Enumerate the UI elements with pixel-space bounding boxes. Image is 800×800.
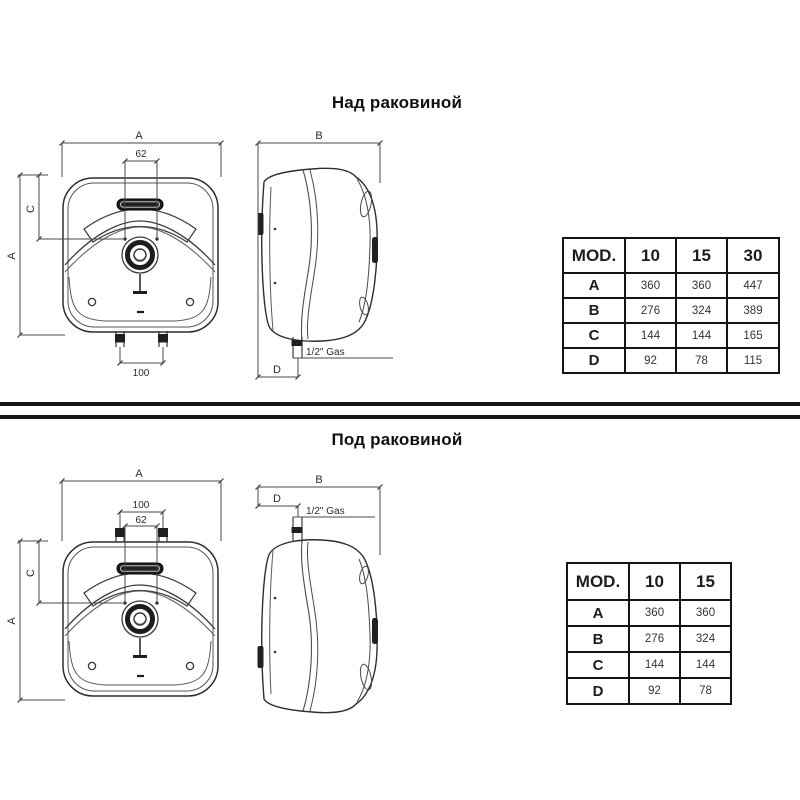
table-row: D 92 78 (567, 678, 731, 704)
dim-value: 324 (676, 298, 727, 323)
dim-value: 78 (680, 678, 731, 704)
dim-label-B: B (315, 474, 322, 486)
dim-width-100: 100 (118, 347, 166, 379)
table-header-cell: MOD. (567, 563, 629, 600)
dim-row-label: B (567, 626, 629, 652)
dim-offset-D: D (256, 358, 301, 380)
dim-label-A-left: A (6, 252, 18, 260)
dim-value: 360 (680, 600, 731, 626)
dim-value: 360 (629, 600, 680, 626)
gas-size-label: 1/2" Gas (306, 506, 345, 517)
table-header-cell: 15 (680, 563, 731, 600)
dim-label-D: D (273, 493, 281, 505)
dim-row-label: C (567, 652, 629, 678)
gas-callout: 1/2" Gas (293, 506, 375, 517)
table-row: C 144 144 165 (563, 323, 779, 348)
dim-value: 447 (727, 273, 779, 298)
dim-label-B: B (315, 130, 322, 142)
gas-size-label: 1/2" Gas (306, 347, 345, 358)
table-row: D 92 78 115 (563, 348, 779, 373)
table-header-cell: 10 (629, 563, 680, 600)
gas-callout: 1/2" Gas (293, 347, 393, 358)
section-title-below-sink: Под раковиной (0, 430, 794, 450)
side-view-below-sink: B D 1/2" Gas (240, 460, 400, 718)
dim-label-A-top: A (135, 468, 143, 480)
dim-label-62: 62 (135, 515, 147, 526)
page: Над раковиной Под раковиной (0, 0, 800, 800)
dim-row-label: A (563, 273, 625, 298)
dims-table-below-sink: MOD. 10 15 A 360 360 B 276 324 C 144 144… (566, 562, 732, 705)
side-view-above-sink: B 1/2" Gas D (240, 125, 400, 395)
dim-row-label: D (563, 348, 625, 373)
table-row: A 360 360 (567, 600, 731, 626)
dim-value: 92 (625, 348, 676, 373)
section-divider-line (0, 415, 800, 419)
dim-offset-D: D (256, 493, 301, 517)
dim-label-62: 62 (135, 149, 147, 160)
table-row: B 276 324 (567, 626, 731, 652)
dim-height-A: A (6, 539, 65, 703)
gas-pipe (292, 337, 303, 358)
dim-label-100: 100 (133, 500, 150, 511)
table-header-cell: MOD. (563, 238, 625, 273)
dims-table-above-sink: MOD. 10 15 30 A 360 360 447 B 276 324 38… (562, 237, 780, 374)
dim-label-D: D (273, 364, 281, 376)
table-header-cell: 15 (676, 238, 727, 273)
dim-value: 360 (625, 273, 676, 298)
section-title-above-sink: Над раковиной (0, 93, 794, 113)
dim-label-A-left: A (6, 617, 18, 625)
dim-row-label: C (563, 323, 625, 348)
dim-row-label: B (563, 298, 625, 323)
dim-label-C: C (25, 569, 37, 577)
dim-value: 144 (680, 652, 731, 678)
dim-value: 78 (676, 348, 727, 373)
dim-value: 276 (629, 626, 680, 652)
dim-value: 276 (625, 298, 676, 323)
table-header-cell: 30 (727, 238, 779, 273)
dim-row-label: D (567, 678, 629, 704)
water-pipes (115, 331, 168, 347)
table-row: A 360 360 447 (563, 273, 779, 298)
table-header-row: MOD. 10 15 (567, 563, 731, 600)
dim-value: 144 (676, 323, 727, 348)
dim-label-A-top: A (135, 130, 143, 142)
dim-value: 92 (629, 678, 680, 704)
table-row: C 144 144 (567, 652, 731, 678)
dim-value: 144 (625, 323, 676, 348)
dim-value: 389 (727, 298, 779, 323)
front-view-below-sink: A 100 62 C (5, 460, 235, 712)
dim-height-A: A (6, 173, 65, 338)
dim-value: 324 (680, 626, 731, 652)
table-row: B 276 324 389 (563, 298, 779, 323)
dim-row-label: A (567, 600, 629, 626)
dim-label-100: 100 (133, 368, 150, 379)
table-header-cell: 10 (625, 238, 676, 273)
dim-label-C: C (25, 205, 37, 213)
dim-value: 144 (629, 652, 680, 678)
front-view-above-sink: A 62 C A (5, 125, 235, 395)
dim-value: 115 (727, 348, 779, 373)
table-header-row: MOD. 10 15 30 (563, 238, 779, 273)
gas-pipe (292, 517, 303, 542)
dim-value: 360 (676, 273, 727, 298)
water-pipes (115, 528, 168, 542)
dim-value: 165 (727, 323, 779, 348)
section-divider-line (0, 402, 800, 406)
